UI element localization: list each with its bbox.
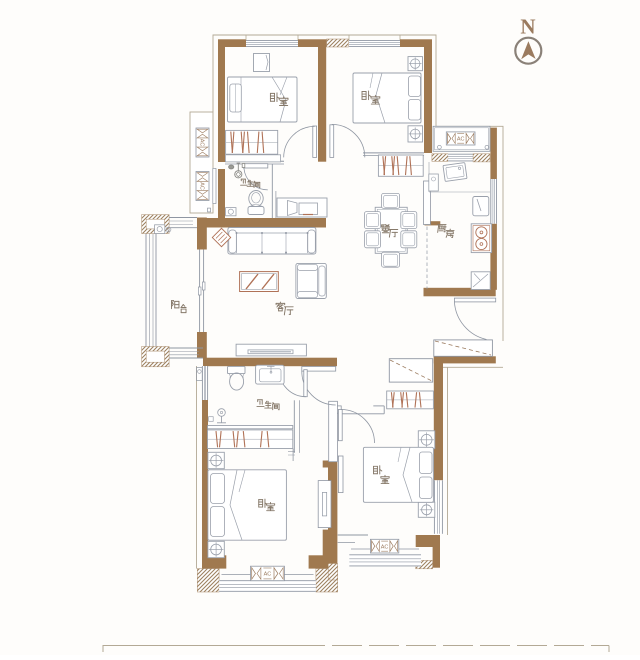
svg-text:AC: AC — [381, 544, 389, 550]
svg-text:AC: AC — [457, 137, 465, 143]
svg-text:AC: AC — [198, 182, 204, 190]
svg-text:AC: AC — [198, 139, 204, 147]
svg-text:N: N — [520, 15, 535, 39]
svg-text:AC: AC — [264, 572, 272, 578]
